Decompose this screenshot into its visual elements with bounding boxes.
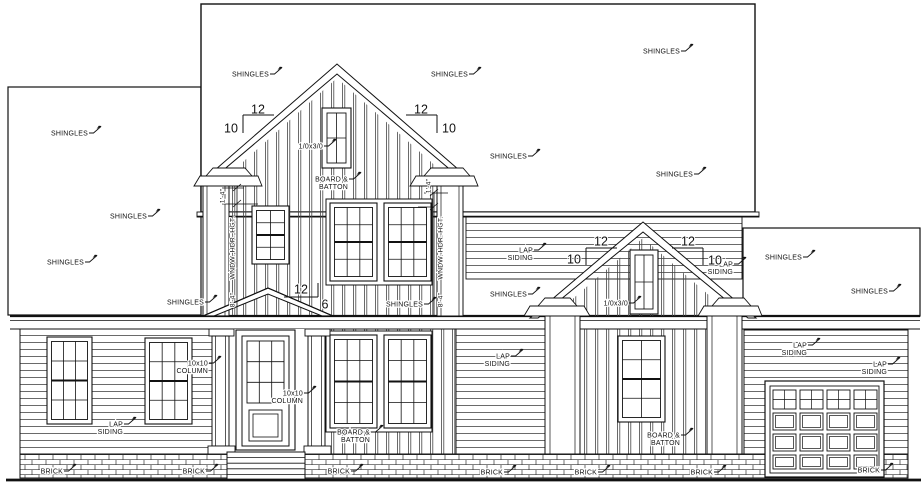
brick-label-7: BRICK — [858, 468, 881, 475]
brick-label-5: BRICK — [575, 470, 598, 477]
shingles-label-11: SHINGLES — [490, 292, 527, 299]
brick-label-3: BRICK — [328, 469, 351, 476]
brick-label-6: BRICK — [691, 470, 714, 477]
shingles-label-9: SHINGLES — [167, 300, 204, 307]
entry-steps — [227, 452, 305, 480]
window-left-wing-1 — [47, 337, 92, 424]
pitch-marker-5-run: 12 — [294, 283, 308, 297]
shingles-label-10: SHINGLES — [386, 302, 423, 309]
right-wing-roof-plane — [743, 228, 920, 316]
porch-column-left-10x10 — [545, 316, 580, 454]
right-gable-cap-top — [424, 168, 470, 176]
brick-label-2: BRICK — [183, 469, 206, 476]
garage-door — [765, 381, 884, 477]
dimension-text-1: 1'-4" — [220, 188, 227, 203]
board_batton-label-3: BOARD &BATTON — [647, 433, 680, 448]
pitch-marker-1-rise: 10 — [224, 122, 238, 136]
porch-column-right-10x10 — [707, 316, 742, 454]
brick-label-4: BRICK — [481, 470, 504, 477]
window-lower-pair-left — [330, 335, 377, 428]
pitch-marker-2-run: 12 — [414, 103, 428, 117]
shingles-label-8: SHINGLES — [47, 260, 84, 267]
shingles-label-4: SHINGLES — [490, 154, 527, 161]
board_batton-label-2: BOARD &BATTON — [337, 430, 370, 445]
elevation-drawing: SHINGLESSHINGLESSHINGLESSHINGLESSHINGLES… — [0, 0, 924, 486]
pitch-marker-3-rise: 10 — [567, 253, 581, 267]
shingles-label-3: SHINGLES — [643, 49, 680, 56]
pitch-marker-4-run: 12 — [681, 235, 695, 249]
pitch-marker-3-run: 12 — [594, 235, 608, 249]
shingles-label-2: SHINGLES — [431, 72, 468, 79]
pitch-marker-4-rise: 10 — [708, 254, 722, 268]
left-roof-plane — [8, 87, 201, 315]
door-glass — [247, 341, 284, 403]
window-lower-pair-right — [384, 335, 431, 428]
shingles-label-6: SHINGLES — [51, 131, 88, 138]
center-lap-wall — [456, 329, 547, 454]
window_size-label-2: 1/0x3/0 — [604, 301, 628, 308]
window-upper-pair-left — [330, 203, 377, 281]
dimension-text-3: 8'-4" — [230, 292, 237, 307]
window-upper-pair-right — [384, 203, 431, 281]
dimension-text-5: WNDW. HDR. HGT. — [438, 216, 445, 279]
window-central-gable-1-0x3-0 — [322, 108, 351, 168]
board_batton-label-1: BOARD &BATTON — [315, 177, 348, 192]
shingles-label-1: SHINGLES — [232, 72, 269, 79]
brick-label-1: BRICK — [41, 469, 64, 476]
dimension-text-6: 8'-4" — [438, 292, 445, 307]
elevation-linework: SHINGLESSHINGLESSHINGLESSHINGLESSHINGLES… — [0, 0, 924, 486]
shingles-label-7: SHINGLES — [110, 214, 147, 221]
pitch-marker-5-rise: 6 — [322, 298, 329, 312]
window-left-wing-2 — [145, 338, 192, 424]
pitch-marker-2-rise: 10 — [442, 122, 456, 136]
window-upper-single — [252, 206, 289, 264]
left-gable-cap-top — [206, 168, 252, 176]
eave-band — [10, 316, 920, 329]
shingles-label-12: SHINGLES — [765, 255, 802, 262]
shingles-label-11-leader — [528, 288, 540, 295]
window_size-label-1: 1/0x3/0 — [299, 144, 323, 151]
pitch-marker-1-run: 12 — [251, 103, 265, 117]
window-right-gable-wall — [618, 336, 665, 422]
right-gable-cap — [410, 176, 478, 186]
left-gable-cap — [194, 176, 262, 186]
shingles-label-5: SHINGLES — [656, 172, 693, 179]
dimension-text-2: WNDW. HDR. HGT. — [230, 216, 237, 279]
window-right-gable-1-0x3-0 — [630, 250, 658, 314]
dimension-text-4: 1'-4" — [426, 178, 433, 193]
shingles-label-13: SHINGLES — [851, 289, 888, 296]
